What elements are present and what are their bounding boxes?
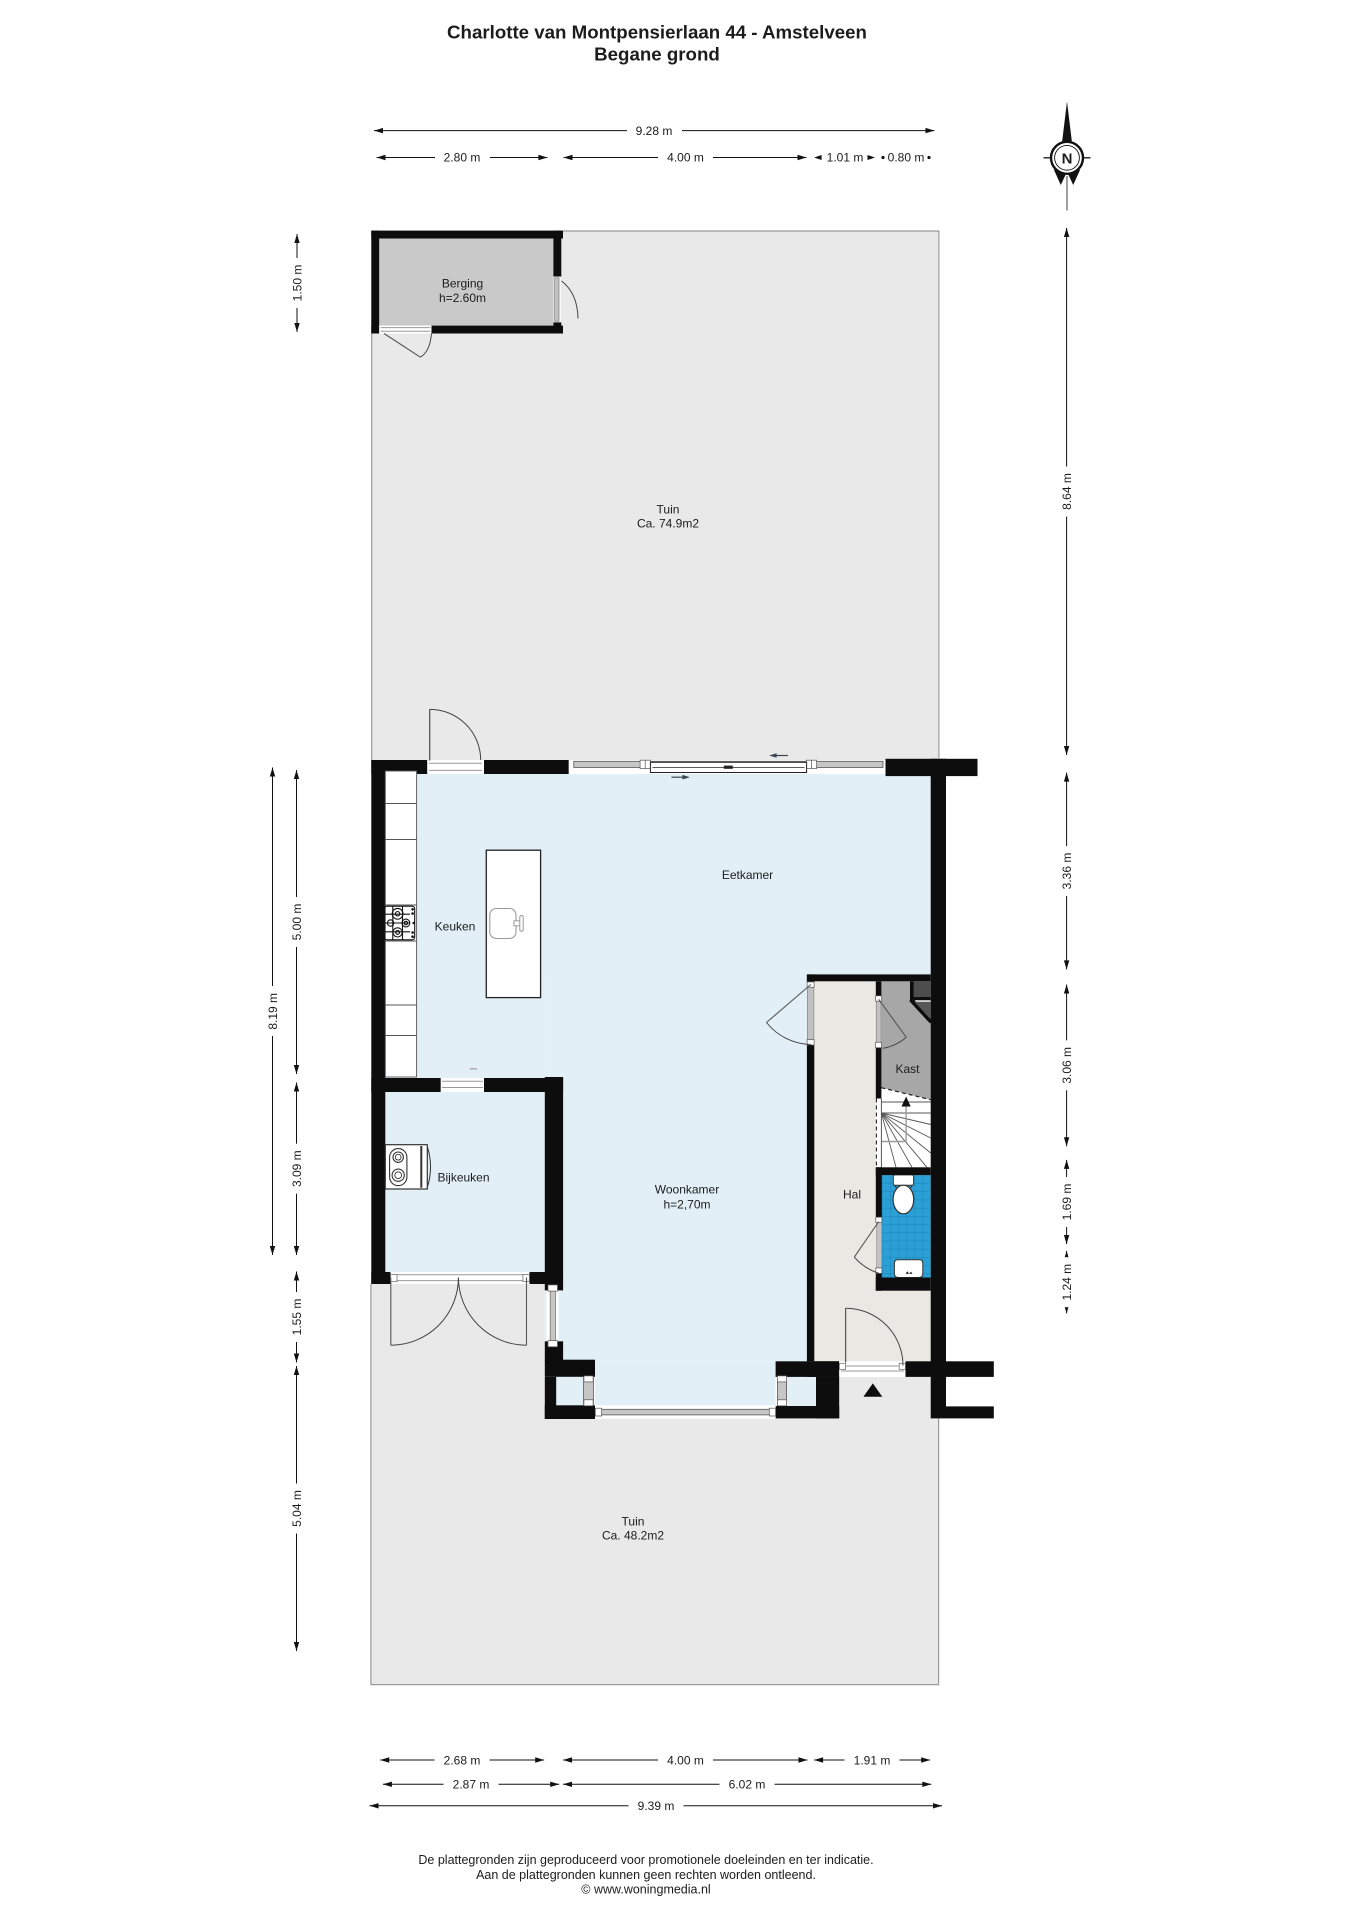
- svg-text:1.50 m: 1.50 m: [290, 265, 304, 302]
- svg-text:Begane grond: Begane grond: [594, 44, 720, 65]
- svg-text:1.24 m: 1.24 m: [1060, 1264, 1074, 1301]
- svg-text:5.04 m: 5.04 m: [290, 1490, 304, 1527]
- svg-text:De plattegronden zijn geproduc: De plattegronden zijn geproduceerd voor …: [418, 1853, 873, 1867]
- svg-text:h=2.60m: h=2.60m: [439, 291, 486, 305]
- svg-text:Kast: Kast: [895, 1062, 920, 1076]
- svg-text:Tuin: Tuin: [622, 1514, 645, 1528]
- svg-text:Bijkeuken: Bijkeuken: [437, 1170, 489, 1184]
- svg-text:Hal: Hal: [843, 1187, 861, 1201]
- svg-text:4.00 m: 4.00 m: [667, 151, 704, 165]
- svg-text:Charlotte van Montpensierlaan: Charlotte van Montpensierlaan 44 - Amste…: [447, 22, 867, 43]
- svg-text:9.28 m: 9.28 m: [636, 124, 673, 138]
- svg-text:© www.woningmedia.nl: © www.woningmedia.nl: [581, 1883, 710, 1897]
- svg-text:Tuin: Tuin: [657, 502, 680, 516]
- svg-text:Eetkamer: Eetkamer: [722, 868, 773, 882]
- svg-text:N: N: [1062, 150, 1073, 167]
- svg-text:3.36 m: 3.36 m: [1060, 853, 1074, 890]
- svg-text:1.55 m: 1.55 m: [290, 1299, 304, 1336]
- svg-text:4.00 m: 4.00 m: [667, 1753, 704, 1767]
- svg-text:Woonkamer: Woonkamer: [655, 1182, 719, 1196]
- svg-text:0.80 m: 0.80 m: [888, 151, 925, 165]
- svg-text:Ca. 74.9m2: Ca. 74.9m2: [637, 516, 699, 530]
- svg-text:Aan de plattegronden kunnen ge: Aan de plattegronden kunnen geen rechten…: [476, 1868, 816, 1882]
- svg-text:9.39 m: 9.39 m: [638, 1799, 675, 1813]
- svg-text:8.19 m: 8.19 m: [266, 993, 280, 1030]
- svg-text:2.87 m: 2.87 m: [453, 1778, 490, 1792]
- svg-text:2.68 m: 2.68 m: [444, 1753, 481, 1767]
- svg-text:1.01 m: 1.01 m: [827, 151, 864, 165]
- svg-text:Berging: Berging: [442, 276, 483, 290]
- svg-text:Ca. 48.2m2: Ca. 48.2m2: [602, 1528, 664, 1542]
- svg-text:1.91 m: 1.91 m: [854, 1753, 891, 1767]
- svg-text:h=2,70m: h=2,70m: [663, 1197, 710, 1211]
- svg-text:Keuken: Keuken: [435, 919, 476, 933]
- svg-text:3.06 m: 3.06 m: [1060, 1047, 1074, 1084]
- svg-text:6.02 m: 6.02 m: [729, 1778, 766, 1792]
- svg-text:2.80 m: 2.80 m: [444, 151, 481, 165]
- svg-text:3.09 m: 3.09 m: [290, 1150, 304, 1187]
- svg-text:8.64 m: 8.64 m: [1060, 473, 1074, 510]
- svg-text:5.00 m: 5.00 m: [290, 904, 304, 941]
- svg-text:1.69 m: 1.69 m: [1060, 1184, 1074, 1221]
